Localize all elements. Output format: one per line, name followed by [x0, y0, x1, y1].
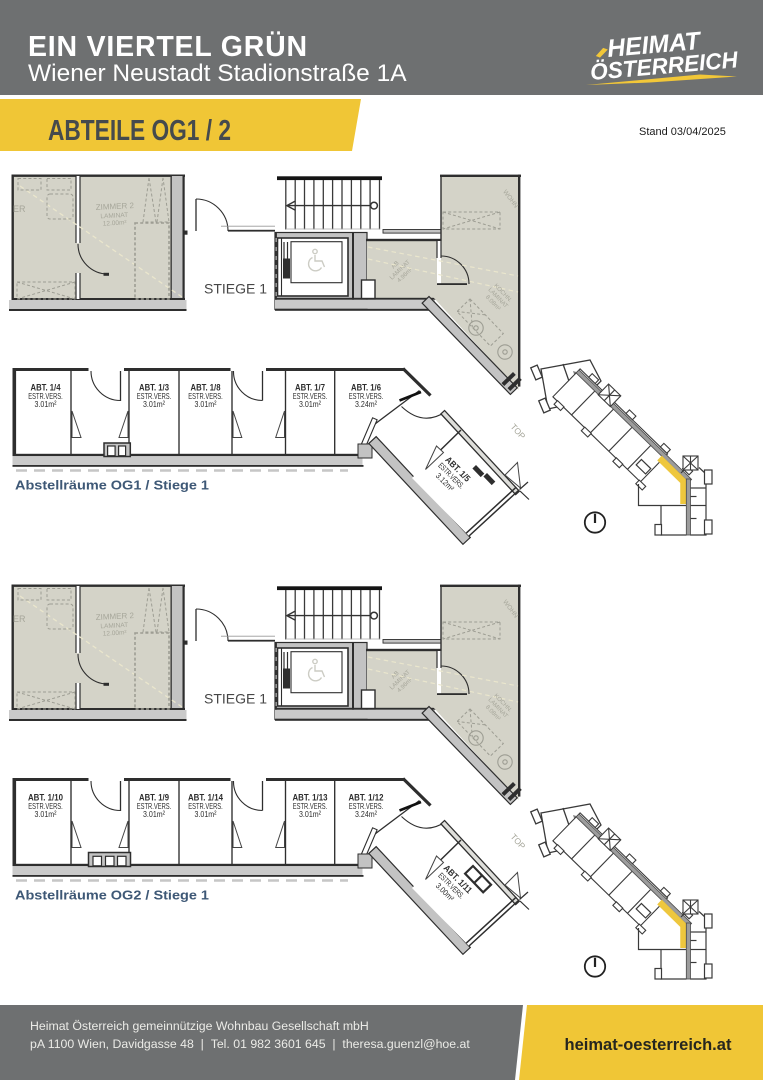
svg-text:heimat-oesterreich.at: heimat-oesterreich.at: [565, 1036, 732, 1054]
svg-text:ER: ER: [13, 614, 26, 624]
svg-text:3.24m²: 3.24m²: [355, 809, 377, 819]
svg-text:TOP: TOP: [509, 832, 528, 852]
svg-text:12.00m²: 12.00m²: [103, 219, 128, 227]
svg-text:3.01m²: 3.01m²: [299, 809, 321, 819]
svg-text:3.01m²: 3.01m²: [35, 809, 57, 819]
svg-text:Abstellräume OG2 / Stiege 1: Abstellräume OG2 / Stiege 1: [15, 888, 209, 903]
svg-text:Abstellräume OG1 / Stiege 1: Abstellräume OG1 / Stiege 1: [15, 478, 209, 493]
svg-text:pA 1100 Wien, Davidgasse 48 |: pA 1100 Wien, Davidgasse 48 | Tel. 01 98…: [30, 1037, 470, 1051]
svg-text:3.01m²: 3.01m²: [299, 399, 321, 409]
svg-text:12.00m²: 12.00m²: [103, 629, 128, 637]
svg-text:3.01m²: 3.01m²: [143, 809, 165, 819]
svg-text:STIEGE 1: STIEGE 1: [204, 281, 267, 297]
svg-text:TOP: TOP: [509, 422, 528, 442]
svg-text:STIEGE 1: STIEGE 1: [204, 691, 267, 707]
svg-text:3.01m²: 3.01m²: [195, 399, 217, 409]
svg-text:3.01m²: 3.01m²: [195, 809, 217, 819]
svg-text:Heimat Österreich gemeinnützig: Heimat Österreich gemeinnützige Wohnbau …: [30, 1019, 369, 1033]
svg-text:3.24m²: 3.24m²: [355, 399, 377, 409]
svg-text:3.01m²: 3.01m²: [143, 399, 165, 409]
svg-text:ER: ER: [13, 204, 26, 214]
svg-text:3.01m²: 3.01m²: [35, 399, 57, 409]
